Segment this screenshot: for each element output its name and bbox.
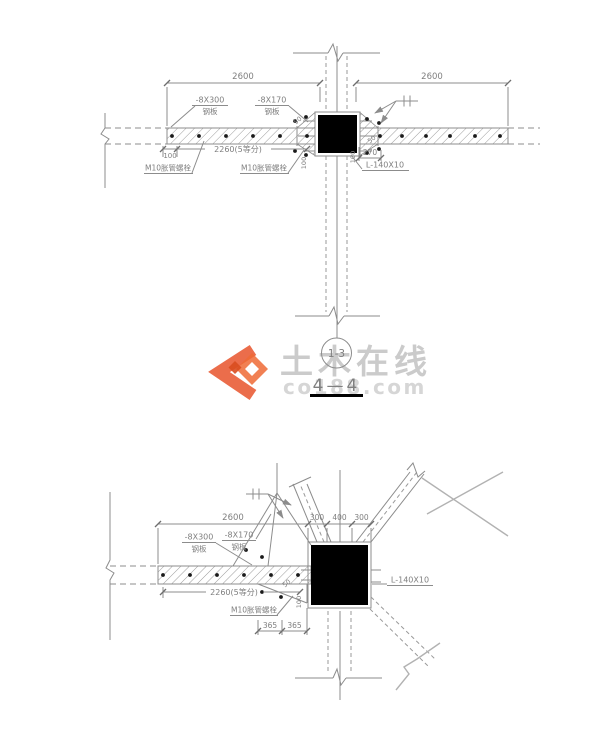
detail-bubble-label: 1-3 <box>328 348 345 360</box>
dim-span-left: 2600 <box>232 72 254 82</box>
label-bolt-left: M10胀管螺栓 <box>145 163 192 173</box>
section-marker: 1-3 4—4 <box>295 156 380 397</box>
label-plate-170-sub: 钢板 <box>232 542 247 552</box>
label-bolt: M10胀管螺栓 <box>231 605 278 615</box>
dim-small: 100 <box>295 596 303 608</box>
dim-col-right: 300 <box>354 513 369 522</box>
dim-small-left: 100 <box>300 157 308 169</box>
dim-365-left: 365 <box>263 621 278 630</box>
top-column-axis-upper <box>293 44 380 112</box>
column-section <box>311 545 368 605</box>
label-angle-cleat: L-140X10 <box>366 161 404 170</box>
column-section <box>318 115 357 153</box>
dim-365-right: 365 <box>287 621 302 630</box>
cad-drawing-page: 土木在线 co188.com <box>0 0 610 734</box>
dim-bolt-spacing: 2260(5等分) <box>214 144 262 154</box>
label-plate-170: -8X170 <box>258 96 287 105</box>
beam-break-mark-left <box>101 113 109 188</box>
label-bolt-mid: M10胀管螺栓 <box>241 163 288 173</box>
top-drawing: 2600 2600 100 2260(5等分) 270 100 100 50 5… <box>101 44 540 397</box>
label-plate-300-sub: 钢板 <box>203 106 218 116</box>
label-plate-170-sub: 钢板 <box>265 106 280 116</box>
bottom-column-axis-lower <box>295 597 440 700</box>
bottom-drawing: 2600 300 400 300 2260(5等分) 365 365 100 5… <box>106 463 508 700</box>
beam-plate-left <box>167 128 315 144</box>
dim-col-offset: 270 <box>363 148 378 157</box>
section-title: 4—4 <box>313 376 361 396</box>
label-angle-cleat: L-140X10 <box>391 576 429 585</box>
dim-bolt-spacing: 2260(5等分) <box>210 587 258 597</box>
dim-col-left: 300 <box>310 513 325 522</box>
bottom-column <box>308 542 371 608</box>
cad-canvas: 2600 2600 100 2260(5等分) 270 100 100 50 5… <box>0 0 610 734</box>
dim-col-mid: 400 <box>332 513 347 522</box>
dim-edge-offset: 100 <box>163 152 176 160</box>
weld-symbol <box>375 96 418 124</box>
bottom-braces <box>246 463 508 542</box>
dim-span-right: 2600 <box>421 72 443 82</box>
beam-plate-right <box>360 128 508 144</box>
section-title-underline <box>310 394 363 397</box>
label-plate-300-sub: 钢板 <box>192 544 207 554</box>
label-plate-170: -8X170 <box>225 531 254 540</box>
top-column <box>315 112 360 156</box>
dim-span: 2600 <box>222 513 244 523</box>
label-plate-300: -8X300 <box>185 533 214 542</box>
label-plate-300: -8X300 <box>196 96 225 105</box>
